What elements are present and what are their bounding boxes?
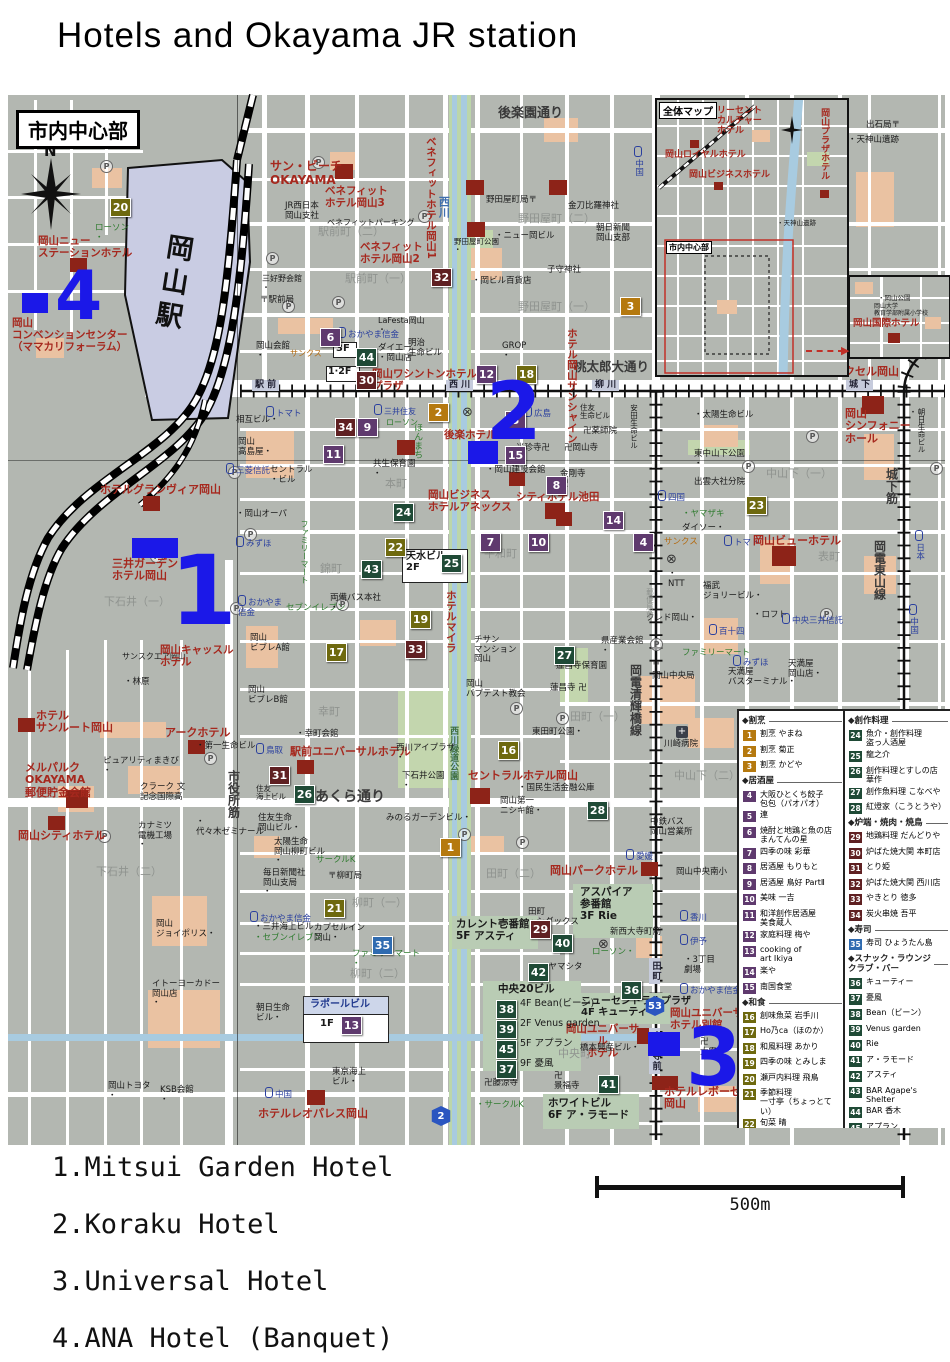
- hotel-site-square: [690, 140, 699, 148]
- legend-item-label: 創味魚菜 岩手川: [760, 1011, 819, 1020]
- tram-stop: 城 下: [846, 380, 873, 391]
- map-label: 橋本興産ビル・: [580, 1044, 640, 1054]
- parking-icon: P: [510, 702, 523, 715]
- scale-cap-left: [595, 1176, 599, 1198]
- legend-item-label: Bean（ビーン）: [866, 1008, 926, 1017]
- scale-bar: 500m: [595, 1176, 905, 1215]
- hotel-label: アークホテル: [165, 727, 230, 739]
- map-label: 岡山 高島屋・: [238, 438, 272, 457]
- hotel-label: ベネフィット ホテル岡山3: [325, 186, 388, 210]
- legend-section-title: ◆寿司: [848, 926, 948, 936]
- legend-badge-45: 45: [848, 1122, 863, 1128]
- poi-badge-17: 17: [326, 643, 347, 662]
- legend-item-label: 紅燈家（こうとうや）: [866, 802, 946, 811]
- legend-item: 9居酒屋 鳥好 PartⅡ: [742, 878, 842, 891]
- bank-icon: [733, 655, 741, 666]
- hotel-label: 岡山ビューホテル: [753, 535, 841, 547]
- hotel-label: ホテルグランヴィア岡山: [100, 484, 221, 496]
- poi-badge-2: 2: [428, 403, 449, 422]
- legend-item-label: とり姫: [866, 862, 890, 871]
- legend-item-label: 家庭料理 梅や: [760, 930, 811, 939]
- map-label: ・岡山建設会館: [486, 466, 546, 476]
- bank-icon: [266, 406, 274, 417]
- legend-badge-43: 43: [848, 1086, 863, 1099]
- poi-badge-26: 26: [294, 785, 315, 804]
- legend-item-label: 寿司 ひょうたん島: [866, 938, 933, 947]
- legend-badge-17: 17: [742, 1026, 757, 1039]
- map-label: 卍薬師院: [583, 427, 617, 437]
- hotel-label: ホテルマイラ: [444, 590, 456, 653]
- legend-item-label: Ho乃ca（ほのか）: [760, 1026, 828, 1035]
- map-label: 市役所筋: [226, 770, 240, 818]
- legend-section-title: ◆炉端・焼肉・焼鳥: [848, 819, 948, 829]
- legend-item: 1割烹 やまね: [742, 729, 842, 742]
- map-label: 卍 景福寺: [554, 1072, 580, 1091]
- hotel-site-square: [466, 180, 484, 195]
- map-label: ・国民生活金融公庫: [518, 784, 595, 794]
- legend-item: 12家庭料理 梅や: [742, 930, 842, 943]
- legend-item: 10美味 一吉: [742, 893, 842, 906]
- map-label: ・岡山オーパ: [236, 510, 287, 520]
- map-label: ・第一生命ビル: [196, 742, 256, 752]
- poi-badge-24: 24: [393, 503, 414, 522]
- hotel-marker-number-2: 2: [486, 372, 542, 452]
- map-label: 〒柳町局: [328, 872, 362, 882]
- map-label: 中央三井信託: [782, 613, 843, 627]
- map-label: 柳町（二）: [350, 968, 405, 980]
- map-label: サークルK: [316, 856, 355, 866]
- hotel-site-square: [641, 862, 658, 876]
- bank-icon: [724, 535, 732, 546]
- callout-arrow-head: ▶: [841, 344, 849, 357]
- legend-item-label: 炉ばた焼大関 西川店: [866, 878, 941, 887]
- map-label: ・セブンイレブン: [254, 934, 322, 944]
- hotel-marker-number-1: 1: [170, 543, 237, 639]
- hotel-label: セントラルホテル岡山: [468, 770, 578, 782]
- map-label: おかやま 信金: [238, 595, 282, 618]
- map-label: 出雲大社分院: [694, 478, 745, 488]
- poi-badge-42: 42: [528, 963, 549, 982]
- legend-item-label: BAR Agape's Shelter: [866, 1086, 948, 1104]
- legend-item: 20瀬戸内料理 飛鳥: [742, 1073, 842, 1086]
- legend-item: 13cooking of art Ikiya: [742, 945, 842, 963]
- bank-icon: [374, 404, 382, 415]
- map-label: 岡山 ジョイポリス・: [156, 920, 216, 939]
- map-label: 三好野会館 ・: [262, 274, 302, 292]
- poi-badge-30: 30: [356, 371, 377, 390]
- map-label: KSB会館 ・: [160, 1086, 194, 1105]
- map-label: ・ NTT: [668, 570, 685, 589]
- map-label: 岡電清輝橋線: [628, 664, 642, 736]
- legend-item-label: 焼酎と地鶏と魚の店 まんてんの星: [760, 826, 832, 844]
- legend-item-label: 居酒屋 もりもと: [760, 862, 818, 871]
- legend-badge-40: 40: [848, 1039, 863, 1052]
- map-label: 三菱信託: [226, 463, 270, 477]
- legend-item: 39Venus garden: [848, 1024, 948, 1037]
- legend-item-label: 楽や: [760, 966, 776, 975]
- poi-badge-7: 7: [480, 533, 501, 552]
- bank-icon: [265, 1087, 273, 1098]
- legend-item-label: 美味 一吉: [760, 893, 795, 902]
- legend-badge-41: 41: [848, 1055, 863, 1068]
- map-label: 中鉄バス 岡山営業所: [650, 818, 693, 837]
- poi-badge-43: 43: [361, 560, 382, 579]
- map-label: 郵便局前: [645, 588, 653, 618]
- map-label: ・ニュー岡ビル: [495, 232, 555, 242]
- map-label: 両備バス本社 ・: [330, 594, 381, 613]
- legend-badge-25: 25: [848, 750, 863, 763]
- map-label: ピュアリティまきび ・: [103, 757, 179, 776]
- legend-badge-35: 35: [848, 938, 863, 951]
- hotel-site-square: [714, 182, 723, 190]
- map-label: ラポールビル: [310, 999, 370, 1010]
- map-label: ・ 代々木ゼミナール: [196, 818, 264, 837]
- map-label: 県産業会館 ・: [601, 637, 644, 656]
- bank-icon: [236, 536, 244, 547]
- map-label: みのるガーデンビル・: [386, 814, 471, 824]
- map-label: サンクス: [664, 538, 698, 548]
- legend-badge-31: 31: [848, 862, 863, 875]
- poi-badge-25: 25: [441, 554, 462, 573]
- map-label: 田町（二）: [486, 868, 541, 880]
- hotel-label: メルパルク OKAYAMA 郵便貯金会館: [25, 762, 91, 799]
- legend-item-label: 居酒屋 鳥好 PartⅡ: [760, 878, 825, 887]
- map-label: アスパイア 参番館 3F Rie: [580, 887, 633, 923]
- map-label: 岡山大学 教育学部附属小学校: [874, 304, 928, 318]
- legend-badge-29: 29: [848, 831, 863, 844]
- hotel-label: ベネフィット ホテル岡山2: [360, 242, 423, 266]
- legend-badge-27: 27: [848, 787, 863, 800]
- map-label: 2F Venus garden: [520, 1019, 600, 1030]
- map-label: 本町: [385, 478, 407, 490]
- poi-badge-45: 45: [496, 1040, 517, 1059]
- map-label: ・サークルK: [476, 1101, 524, 1111]
- legend-badge-7: 7: [742, 847, 757, 860]
- map-label: 中山下（一）: [766, 468, 832, 480]
- legend-item: 31とり姫: [848, 862, 948, 875]
- poi-badge-41: 41: [598, 1075, 619, 1094]
- scale-bar-line: [595, 1185, 905, 1190]
- legend-badge-32: 32: [848, 878, 863, 891]
- legend-badge-36: 36: [848, 977, 863, 990]
- bank-icon: [909, 604, 917, 615]
- map-label: GROP ・: [502, 342, 526, 361]
- parking-icon: P: [556, 712, 569, 725]
- map-label: 天満屋 バスターミナル・: [728, 668, 796, 687]
- map-label: 明治 生命ビル: [408, 339, 442, 358]
- map-label: カレント壱番館 5F アスティ: [456, 919, 530, 943]
- hotel-label: ホテル サンルート岡山: [36, 710, 113, 735]
- map-label: ・岡ビル百貨店: [472, 277, 532, 287]
- poi-badge-38: 38: [496, 1000, 517, 1019]
- legend-badge-3: 3: [742, 760, 757, 773]
- legend-item-label: 龍之介: [866, 750, 890, 759]
- bank-icon: [915, 530, 923, 541]
- poi-badge-9: 9: [357, 418, 378, 437]
- hotel-site-square: [48, 816, 65, 830]
- hotel-site-square: [18, 718, 35, 732]
- poi-badge-33: 33: [405, 640, 426, 659]
- map-label: カナミツ 電機工場 ・: [138, 822, 172, 851]
- hotel-label: 岡山シティホテル: [18, 830, 105, 842]
- map-label: クラーク 文 記念国際高: [140, 783, 185, 802]
- poi-badge-23: 23: [746, 496, 767, 515]
- hotel-list-item: 2.Koraku Hotel: [52, 1209, 393, 1240]
- legend-item: 17Ho乃ca（ほのか）: [742, 1026, 842, 1039]
- map-label: ダイソー・: [682, 524, 725, 534]
- legend-badge-22: 22: [742, 1118, 757, 1128]
- map-label: 錦町: [320, 563, 342, 575]
- map-label: 川崎病院: [664, 740, 698, 750]
- hotel-label: 岡山ロイヤルホテル: [665, 150, 746, 160]
- legend-item: 21季節料理 一寸亭（ちょっとてい）: [742, 1088, 842, 1116]
- poi-badge-34: 34: [335, 418, 356, 437]
- tram-stop: 柳 川: [592, 380, 619, 391]
- page: Hotels and Okayama JR station: [0, 0, 950, 1362]
- hotel-marker-square-4: [22, 293, 48, 313]
- poi-badge-36: 36: [621, 981, 642, 1000]
- hotel-label: 駅前ユニバーサルホテル: [290, 746, 411, 758]
- hotel-label: リーセント カルチャー ホテル: [717, 106, 762, 136]
- map-label: 東京海上 ビル・: [332, 1068, 366, 1087]
- legend-section-title: ◆創作料理: [848, 717, 948, 727]
- bank-icon: [256, 743, 264, 754]
- hotel-site-square: [143, 496, 160, 511]
- map-label: 東中山下公園 ・: [694, 450, 745, 469]
- map-label: 伊予: [680, 934, 707, 948]
- crossing-icon: ⊗: [666, 553, 677, 566]
- legend-item: 18和風料理 あかり: [742, 1042, 842, 1055]
- map-label: 〒駅前局: [260, 296, 294, 306]
- bank-icon: [680, 934, 688, 945]
- legend-item-label: 炭火串焼 吾平: [866, 909, 917, 918]
- map-label: 朝日生命ビル ・: [908, 408, 925, 453]
- poi-badge-14: 14: [603, 511, 624, 530]
- legend-item: 41ア・ラモード: [848, 1055, 948, 1068]
- inset-title: 全体マップ: [659, 102, 717, 119]
- map-label: 岡電東山線: [872, 540, 886, 600]
- poi-badge-39: 39: [496, 1020, 517, 1039]
- map-label: 岡山 ビブレA館: [250, 634, 290, 653]
- crossing-icon: ⊗: [462, 406, 473, 419]
- map-label: トマト: [266, 406, 302, 420]
- poi-badge-1: 1: [440, 838, 461, 857]
- map-label: 岡山トヨタ ・: [108, 1082, 151, 1101]
- bank-icon: [226, 463, 234, 474]
- map-label: 桃太郎大通り: [574, 360, 649, 374]
- map-label: 朝日生命 ビル・: [256, 1004, 290, 1023]
- tram-stop: 駅 前: [252, 380, 279, 391]
- inset-river: [783, 100, 799, 375]
- hotel-marker-square-3: [648, 1032, 680, 1056]
- legend-item: 5連: [742, 810, 842, 823]
- map-label: ほんまち: [412, 423, 422, 459]
- map-label: 子守神社: [547, 266, 581, 276]
- hotel-label: 岡山プラザホテル: [819, 108, 829, 180]
- legend-item: 45アプラン: [848, 1122, 948, 1128]
- map-label: あくら通り: [315, 790, 385, 806]
- legend-item: 22旬菜 晴: [742, 1118, 842, 1128]
- hotel-site-square: [549, 180, 567, 195]
- map-label: 西川アイプラザ ・: [396, 744, 455, 763]
- map-label: 鳥取: [256, 743, 283, 757]
- legend-badge-11: 11: [742, 909, 757, 922]
- legend-badge-34: 34: [848, 909, 863, 922]
- poi-badge-13: 13: [341, 1016, 362, 1035]
- legend-item-label: やきとり 徳多: [866, 893, 917, 902]
- map-label: 野田屋町（一）: [518, 301, 595, 313]
- map-label: 柳町（一）: [352, 897, 407, 909]
- map-label: ファミリーマート: [300, 520, 309, 584]
- bank-icon: [782, 613, 790, 624]
- legend-item: 4大阪ひとくち餃子 包包（パオパオ）: [742, 790, 842, 808]
- hotel-label: ホテルレオパレス岡山: [258, 1108, 368, 1120]
- bank-icon: [626, 849, 634, 860]
- map-label: 安田生命ビル: [629, 404, 637, 449]
- legend-badge-21: 21: [742, 1088, 757, 1101]
- inset-overview-map: 全体マップ 市内中心部 リーセント カルチャー ホテル岡山ロイヤルホテル岡山ビジ…: [655, 98, 849, 377]
- legend-item-label: 地鶏料理 だんどりや: [866, 831, 940, 840]
- poi-badge-3: 3: [620, 297, 641, 316]
- map-label: ・ヤマザキ: [682, 510, 725, 520]
- hotel-site-square: [307, 1090, 325, 1105]
- map-label: おかやま信金: [680, 983, 741, 997]
- legend-item: 28紅燈家（こうとうや）: [848, 802, 948, 815]
- poi-badge-6: 6: [320, 328, 341, 347]
- legend-badge-39: 39: [848, 1024, 863, 1037]
- map-label: 住友 海上ビル: [256, 785, 286, 802]
- bank-icon: [680, 910, 688, 921]
- legend-item-label: 四季の味 とみしま: [760, 1057, 827, 1066]
- legend-item: 2割烹 菊正: [742, 745, 842, 758]
- map-label: 岡山 ビブレB館: [248, 686, 288, 705]
- map-label: 中国: [633, 146, 643, 176]
- map-label: ・林原: [124, 678, 150, 688]
- map-label: 卍藤涼寺: [484, 1079, 518, 1089]
- legend-badge-4: 4: [742, 790, 757, 803]
- legend-item: 15南国食堂: [742, 982, 842, 995]
- map-label: ・幸町会館: [296, 730, 339, 740]
- hotel-label: 岡山国際ホテル: [853, 319, 920, 330]
- poi-badge-10: 10: [528, 533, 549, 552]
- poi-badge-37: 37: [496, 1060, 517, 1079]
- legend-badge-37: 37: [848, 993, 863, 1006]
- legend-badge-12: 12: [742, 930, 757, 943]
- map-label: 百十四: [709, 624, 745, 638]
- map-label: 中山下（二）: [674, 770, 740, 782]
- legend-badge-14: 14: [742, 966, 757, 979]
- legend-badge-38: 38: [848, 1008, 863, 1021]
- poi-badge-44: 44: [356, 348, 377, 367]
- map-label: 後楽園通り: [498, 107, 563, 122]
- map-label: 福武 ジョリービル・: [703, 582, 763, 601]
- map-label: カプセルイン 岡山・: [314, 924, 365, 943]
- legend-item-label: 割烹 かどや: [760, 760, 803, 769]
- legend-item: 34炭火串焼 吾平: [848, 909, 948, 922]
- hotel-list-item: 3.Universal Hotel: [52, 1266, 393, 1297]
- parking-icon: P: [100, 160, 113, 173]
- legend-item: 36キューティー: [848, 977, 948, 990]
- hotel-label: 岡山キャッスル ホテル: [160, 645, 234, 669]
- map-label: 東田町公園・: [532, 728, 583, 738]
- legend-badge-6: 6: [742, 826, 757, 839]
- hotel-label: 三井ガーデン ホテル岡山: [112, 558, 178, 583]
- map-label: ホワイトビル 6F ア・ラモード: [548, 1098, 629, 1122]
- map-label: 〒 岡山中央局: [652, 662, 695, 681]
- parking-icon: P: [650, 638, 663, 651]
- legend-badge-28: 28: [848, 802, 863, 815]
- poi-badge-20: 20: [110, 198, 131, 217]
- legend-item: 32炉ばた焼大関 西川店: [848, 878, 948, 891]
- map-label: 卍岡山寺: [564, 444, 598, 454]
- hotel-list-item: 4.ANA Hotel (Banquet): [52, 1323, 393, 1354]
- legend-item: 33やきとり 徳多: [848, 893, 948, 906]
- map-label: ・3丁目 劇場: [684, 956, 715, 975]
- legend-item-label: 魚介・創作料理 盗っ人酒屋: [866, 729, 922, 747]
- hotel-list-item: 1.Mitsui Garden Hotel: [52, 1152, 393, 1183]
- tram-stop: 西 川: [446, 380, 473, 391]
- legend-item: 14楽や: [742, 966, 842, 979]
- legend-item-label: cooking of art Ikiya: [760, 945, 801, 963]
- hotel-label: 岡山 シンフォニー ホール: [845, 408, 911, 445]
- map-label: チサン マンション 岡山: [474, 636, 517, 665]
- map-label: 三井住友: [374, 404, 416, 416]
- map-label: 城下筋: [884, 468, 898, 504]
- map-label: 愛媛: [626, 849, 653, 863]
- legend-item: 16創味魚菜 岩手川: [742, 1011, 842, 1024]
- legend-item: 7四季の味 彩華: [742, 847, 842, 860]
- hotel-site-square: [467, 222, 485, 237]
- legend-item-label: Venus garden: [866, 1024, 921, 1033]
- parking-icon: P: [806, 430, 819, 443]
- legend-badge-13: 13: [742, 945, 757, 958]
- map-label: 野田屋町公園 ・: [454, 238, 499, 255]
- map-label: 1·2F: [328, 367, 351, 378]
- map-label: 下石井（二）: [96, 866, 162, 878]
- legend-item-label: アプラン: [866, 1122, 898, 1128]
- map-label: サンクス: [290, 349, 322, 358]
- map-label: イトーヨーカドー 岡山店 ・: [152, 980, 220, 1009]
- map-label: ローソン・: [592, 948, 635, 958]
- map-label: JR西日本 岡山支社: [285, 202, 319, 221]
- legend-item: 26創作料理とすしの店 華作: [848, 766, 948, 784]
- hotel-label: ベネフィットホテル岡山1: [424, 136, 436, 259]
- legend-item-label: 四季の味 彩華: [760, 847, 811, 856]
- legend-badge-8: 8: [742, 862, 757, 875]
- legend-item-label: ア・ラモード: [866, 1055, 914, 1064]
- scale-cap-right: [901, 1176, 905, 1198]
- legend-item-label: 割烹 菊正: [760, 745, 795, 754]
- legend-item: 43BAR Agape's Shelter: [848, 1086, 948, 1104]
- map-label: 表町: [818, 551, 840, 563]
- map-label: 出石局〒: [866, 121, 900, 131]
- legend-badge-5: 5: [742, 810, 757, 823]
- map-label: 日本: [914, 530, 924, 560]
- legend-item: 8居酒屋 もりもと: [742, 862, 842, 875]
- legend-item: 40Rie: [848, 1039, 948, 1052]
- parking-icon: P: [266, 252, 279, 265]
- poi-badge-16: 16: [498, 741, 519, 760]
- bank-icon: [680, 983, 688, 994]
- hotel-site-square: [470, 788, 490, 804]
- legend-badge-33: 33: [848, 893, 863, 906]
- hotel-marker-number-4: 4: [55, 263, 102, 331]
- legend-item: 42アスティ: [848, 1070, 948, 1083]
- legend-item: 35寿司 ひょうたん島: [848, 938, 948, 951]
- legend-item: 44BAR 香木: [848, 1106, 948, 1119]
- map-label: ・三井海上ビル: [254, 923, 314, 933]
- map-label: LaFesta岡山 ・: [378, 316, 425, 334]
